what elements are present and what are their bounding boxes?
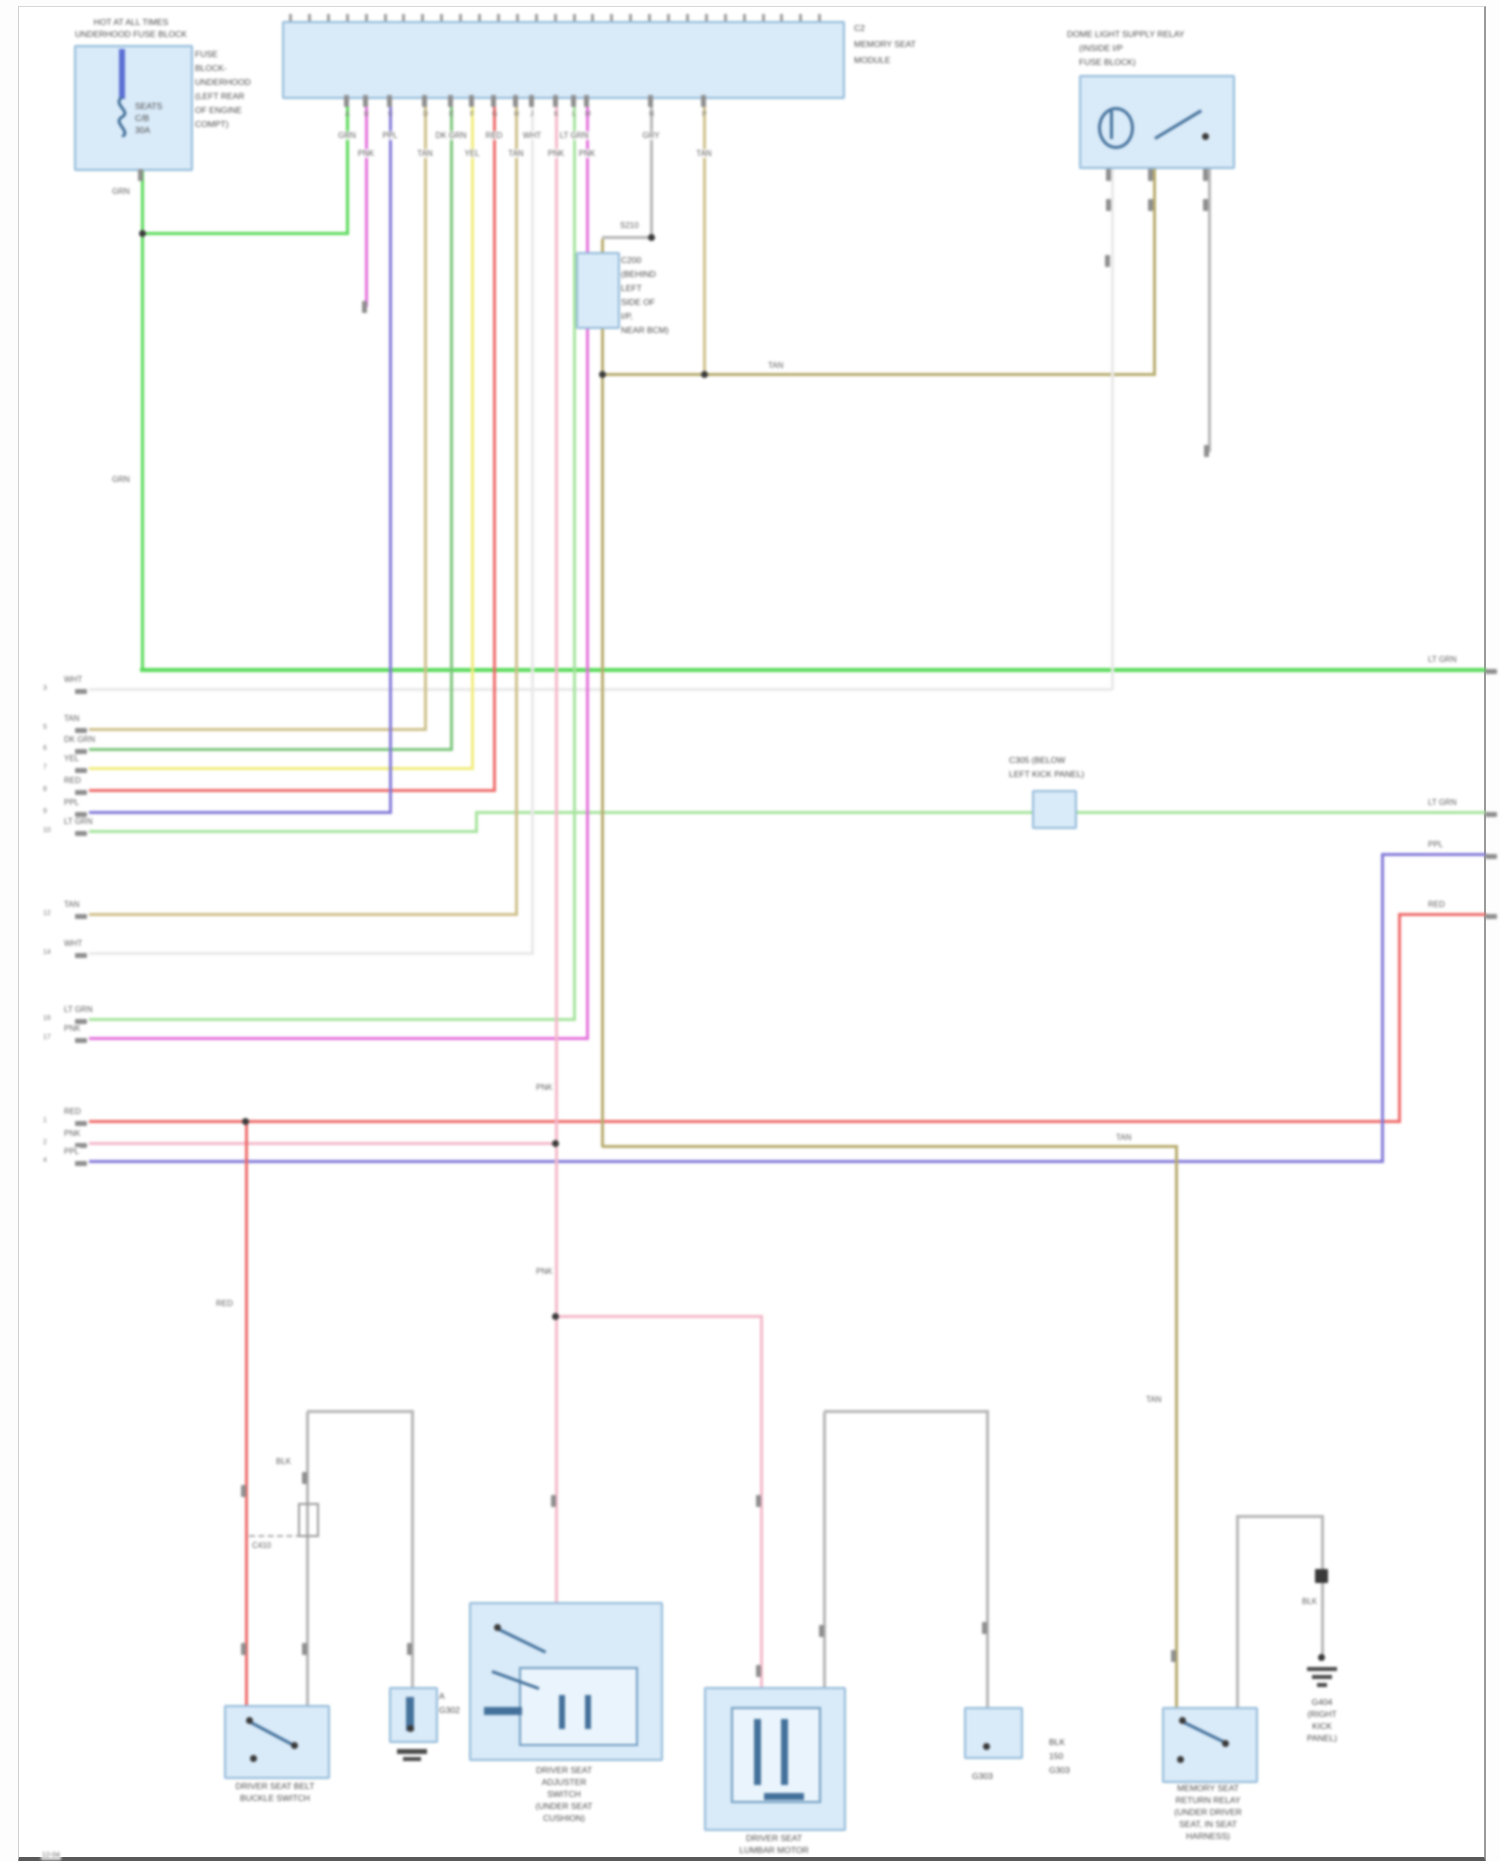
- wire-red-row: [89, 789, 496, 792]
- terminal-number: 3: [43, 685, 47, 692]
- fuse-side-label3: UNDERHOOD: [195, 77, 251, 87]
- wire-color-label: PNK: [357, 149, 375, 158]
- fuse-side-label4: (LEFT REAR: [195, 91, 244, 101]
- module-tick: [762, 14, 765, 21]
- module-tick: [365, 14, 368, 21]
- switch-c-contact1: [559, 1695, 565, 1729]
- wire-color-label: GRN: [337, 131, 357, 140]
- module-pin-stub: [701, 95, 706, 107]
- terminal-number: 4: [43, 1157, 47, 1164]
- terminal-stub: [75, 1161, 87, 1166]
- memory-relay-box: [1162, 1707, 1258, 1783]
- module-pin-letter: C: [388, 111, 393, 118]
- fuse-side-label5: OF ENGINE: [195, 105, 242, 115]
- switch-c-dot1: [494, 1624, 501, 1631]
- wire-green-row-a: [140, 668, 1486, 672]
- wire-color-label: PPL: [381, 131, 398, 140]
- module-pin-letter: E: [449, 111, 454, 118]
- wire-inline-label: PNK: [535, 1083, 553, 1092]
- module-tick: [799, 14, 802, 21]
- ground-g303-dot: [983, 1743, 990, 1750]
- motor-winding2: [781, 1719, 788, 1785]
- terminal-number: 17: [43, 1034, 51, 1041]
- wire-green-battery-drop: [141, 167, 144, 670]
- module-pin-stub: [553, 95, 558, 107]
- wire-purple-right-end: [1382, 853, 1486, 856]
- wire-khaki-into-c200: [601, 239, 604, 252]
- wire-color-label: GRY: [641, 131, 660, 140]
- splice-dot-pink-row: [552, 1140, 559, 1147]
- wire-grey-splice-jog: [602, 236, 653, 239]
- module-tick: [384, 14, 387, 21]
- module-tick: [573, 14, 576, 21]
- comp-f-label1: MEMORY SEAT: [1177, 1783, 1239, 1793]
- module-tick: [629, 14, 632, 21]
- inline-connector-c200-box: [576, 252, 620, 329]
- module-pin-stub: [422, 95, 427, 107]
- terminal-stub: [75, 831, 87, 836]
- terminal-stub: [75, 689, 87, 694]
- module-pin-letter: A: [345, 111, 350, 118]
- module-pin-letter: J: [530, 111, 534, 118]
- wire-inline-label: BLK: [275, 1457, 292, 1466]
- terminal-wire-label: PPL: [63, 1147, 80, 1156]
- module-tick: [780, 14, 783, 21]
- ground-g302-dot: [407, 1725, 414, 1732]
- module-tick: [705, 14, 708, 21]
- relay-coil-icon: [1098, 107, 1134, 149]
- terminal-wire-label: DK GRN: [63, 735, 96, 744]
- wire-ltgreen-module-drop: [573, 95, 576, 1020]
- wire-inline-label: TAN: [1115, 1133, 1132, 1142]
- splice-s210-label: S210: [619, 221, 640, 230]
- wire-purple-module-drop: [389, 95, 392, 813]
- module-pin-stub: [469, 95, 474, 107]
- switch-f-dot1: [1179, 1717, 1186, 1724]
- terminal-number: 10: [43, 827, 51, 834]
- pink-wire-end-stub: [362, 301, 367, 313]
- conn-stub-khaki: [1171, 1650, 1176, 1662]
- conn-stub-red: [241, 1485, 246, 1497]
- module-pin-letter: N: [649, 111, 654, 118]
- comp-c-label3: SWITCH: [547, 1789, 581, 1799]
- comp-c-label5: CUSHION): [543, 1813, 585, 1823]
- module-name-line2: MODULE: [854, 55, 890, 65]
- relay-contact-dot: [1202, 133, 1209, 140]
- wire-tan3-module-drop: [703, 95, 706, 375]
- comp-e-side1: BLK: [1049, 1737, 1065, 1747]
- module-tick: [818, 14, 821, 21]
- comp-c-label2: ADJUSTER: [542, 1777, 587, 1787]
- splice-dot-khaki2: [701, 371, 708, 378]
- module-tick: [440, 14, 443, 21]
- terminal-wire-label: TAN: [63, 900, 80, 909]
- module-tick: [459, 14, 462, 21]
- relay-pin-stub: [1106, 169, 1111, 181]
- ground-wire-terminal: [1315, 1569, 1328, 1583]
- module-tick: [421, 14, 424, 21]
- module-tick: [346, 14, 349, 21]
- wire-color-label: TAN: [416, 149, 433, 158]
- fuse-inside-label3: 30A: [135, 125, 150, 135]
- wire-pink-row: [89, 1037, 589, 1040]
- conn-stub-grey5: [982, 1622, 987, 1634]
- wire-color-label: WHT: [522, 131, 542, 140]
- wire-purple-row: [89, 811, 392, 814]
- switch-f-dot3: [1177, 1756, 1184, 1763]
- terminal-number: 12: [43, 910, 51, 917]
- wire-grey-loop2-top: [824, 1410, 989, 1413]
- diagram-canvas: HOT AT ALL TIMES UNDERHOOD FUSE BLOCK SE…: [19, 7, 1484, 1857]
- wire-white-relay-drop: [1111, 165, 1114, 690]
- wire-white-row-2: [89, 952, 534, 955]
- wire-color-label: PNK: [547, 149, 565, 158]
- ground-g303-box: [964, 1707, 1023, 1759]
- ground-g302-pedestal1: [397, 1749, 427, 1754]
- fuse-inside-label2: C/B: [135, 113, 149, 123]
- wire-color-label: DK GRN: [434, 131, 467, 140]
- relay-pin-stub: [1203, 169, 1208, 181]
- g404-label4: PANEL): [1307, 1733, 1337, 1743]
- wire-grey-loop2-right: [986, 1410, 989, 1707]
- terminal-number: 9: [43, 808, 47, 815]
- module-pin-stub: [571, 95, 576, 107]
- conn-stub-pink3: [756, 1665, 761, 1677]
- wire-dkgreen-module-drop: [450, 95, 453, 750]
- comp-d-label2: LUMBAR MOTOR: [739, 1845, 808, 1855]
- motor-inner-box: [731, 1707, 821, 1803]
- ground-g404-bar3: [1317, 1683, 1327, 1687]
- wire-grey-loop2-left: [823, 1412, 826, 1687]
- terminal-number: 2: [43, 1139, 47, 1146]
- wire-grey-ground-drop: [1321, 1515, 1324, 1659]
- motor-base-bar: [764, 1793, 804, 1800]
- module-pin-stub: [529, 95, 534, 107]
- splice-dot-pink-branch: [552, 1313, 559, 1320]
- wire-tan-row-2: [89, 913, 518, 916]
- wire-khaki-comp-f-drop: [1175, 1145, 1178, 1707]
- module-tick: [478, 14, 481, 21]
- comp-f-label3: (UNDER DRIVER: [1174, 1807, 1242, 1817]
- module-tick: [516, 14, 519, 21]
- terminal-stub: [75, 790, 87, 795]
- module-pin-stub: [344, 95, 349, 107]
- c200-side4: SIDE OF: [621, 297, 655, 307]
- terminal-number: 14: [43, 949, 51, 956]
- switch-a-dot2: [291, 1742, 298, 1749]
- terminal-wire-label: WHT: [63, 939, 83, 948]
- conn-stub-pink1: [551, 1495, 556, 1507]
- terminal-wire-label: TAN: [63, 714, 80, 723]
- ground-g302-pedestal2: [403, 1757, 421, 1761]
- wire-tan-module-drop: [424, 95, 427, 730]
- wire-inline-label: PNK: [535, 1267, 553, 1276]
- terminal-wire-label: PNK: [63, 1129, 81, 1138]
- module-tick: [402, 14, 405, 21]
- terminal-wire-label: YEL: [63, 754, 80, 763]
- g404-label3: KICK: [1312, 1721, 1332, 1731]
- wire-pink-branch: [556, 1315, 763, 1318]
- comp-c-label1: DRIVER SEAT: [536, 1765, 592, 1775]
- wire-white-module-drop: [531, 95, 534, 954]
- terminal-wire-label: RED: [1427, 900, 1446, 909]
- terminal-number: 16: [43, 1015, 51, 1022]
- module-name-line1: MEMORY SEAT: [854, 39, 916, 49]
- wire-color-label: TAN: [695, 149, 712, 158]
- wire-inline-label: TAN: [767, 361, 784, 370]
- module-pin-letter: D: [423, 111, 428, 118]
- relay-coil-core: [1110, 111, 1113, 139]
- splice-dot-red-row: [242, 1118, 249, 1125]
- terminal-number: 7: [43, 764, 47, 771]
- relay-pin-stub: [1148, 169, 1153, 181]
- comp-c-label4: (UNDER SEAT: [536, 1801, 593, 1811]
- switch-c-resistor-bar: [484, 1707, 522, 1715]
- wire-inline-label: RED: [215, 1299, 234, 1308]
- fuse-inside-label1: SEATS: [135, 101, 162, 111]
- wire-purple-long-row: [89, 1160, 1384, 1163]
- wire-pink-module-drop: [365, 95, 368, 307]
- wire-pink-comp-c-drop: [555, 1317, 558, 1602]
- comp-e-below-label: G303: [972, 1771, 993, 1781]
- module-pin-letter: H: [514, 111, 519, 118]
- terminal-stub: [1485, 669, 1497, 674]
- wire-dkgreen-row: [89, 748, 453, 751]
- module-tick: [289, 14, 292, 21]
- switch-c-contact2: [585, 1695, 591, 1729]
- relay-conn-stub: [1148, 199, 1153, 211]
- wire-red-module-drop: [493, 95, 496, 791]
- wire-ltgreen-row-right: [476, 811, 1486, 814]
- comp-a-label2: BUCKLE SWITCH: [240, 1793, 310, 1803]
- wire-red-riser: [1398, 913, 1401, 1122]
- terminal-number: 6: [43, 745, 47, 752]
- wire-inline-label: TAN: [1145, 1395, 1162, 1404]
- wire-grey-loop3-left: [1236, 1515, 1239, 1707]
- conn-stub-red2: [241, 1643, 246, 1655]
- module-tick: [327, 14, 330, 21]
- wire-tan-row: [89, 728, 427, 731]
- fuse-block-title-line2: UNDERHOOD FUSE BLOCK: [75, 29, 187, 39]
- module-tick: [686, 14, 689, 21]
- terminal-wire-label: LT GRN: [1427, 655, 1458, 664]
- wire-red-right-end: [1399, 913, 1486, 916]
- splice-dot-khaki1: [599, 371, 606, 378]
- ground-g404-dot: [1318, 1654, 1325, 1661]
- comp-b-side1: A: [439, 1691, 445, 1701]
- terminal-wire-label: PNK: [63, 1024, 81, 1033]
- conn-stub-grey1: [302, 1472, 307, 1484]
- wire-khaki-bottom-run: [602, 1145, 1178, 1148]
- wire-inline-label: GRN: [111, 187, 131, 196]
- terminal-stub: [75, 768, 87, 773]
- wire-grey-loop1-left: [306, 1412, 309, 1705]
- motor-winding1: [754, 1719, 761, 1785]
- terminal-number: 5: [43, 724, 47, 731]
- module-pin-letter: B: [364, 111, 369, 118]
- comp-e-side3: G303: [1049, 1765, 1070, 1775]
- terminal-stub: [1485, 812, 1497, 817]
- conn-stub-grey2: [302, 1643, 307, 1655]
- wire-pink2-module-drop: [586, 95, 589, 1039]
- fuse-block-out-stub: [138, 169, 143, 181]
- relay-conn-stub2: [1105, 255, 1110, 267]
- c200-side5: I/P,: [621, 311, 633, 321]
- wire-ltgreen-step: [475, 811, 478, 832]
- fuse-block-title-line1: HOT AT ALL TIMES: [94, 17, 169, 27]
- terminal-wire-label: LT GRN: [1427, 798, 1458, 807]
- terminal-wire-label: RED: [63, 1107, 82, 1116]
- comp-f-label4: SEAT, IN SEAT: [1179, 1819, 1237, 1829]
- terminal-stub: [1485, 914, 1497, 919]
- ground-g404-bar1: [1307, 1667, 1337, 1671]
- comp-a-label1: DRIVER SEAT BELT: [236, 1781, 315, 1791]
- wire-khaki-relay-run: [602, 373, 1156, 376]
- terminal-wire-label: PPL: [1427, 840, 1444, 849]
- wire-grey-loop3-top: [1237, 1515, 1324, 1518]
- module-pin-stub: [513, 95, 518, 107]
- circuit-breaker-icon: [109, 97, 135, 137]
- wire-pink-pale-row: [89, 1142, 558, 1145]
- relay-conn-stub: [1203, 199, 1208, 211]
- terminal-number: 1: [43, 1117, 47, 1124]
- splice-dot-battery: [139, 230, 146, 237]
- module-pin-stub: [387, 95, 392, 107]
- conn-stub-grey4: [819, 1625, 824, 1637]
- wire-red-comp-a-drop: [245, 1120, 248, 1705]
- module-tick: [497, 14, 500, 21]
- grey-wire-end-stub: [1204, 445, 1209, 457]
- wire-ltgreen-row-left: [89, 830, 478, 833]
- wire-color-label: RED: [485, 131, 504, 140]
- c200-side6: NEAR BCM): [621, 325, 669, 335]
- switch-a-dot3: [250, 1755, 257, 1762]
- terminal-wire-label: RED: [63, 776, 82, 785]
- terminal-stub: [75, 914, 87, 919]
- comp-f-label2: RETURN RELAY: [1175, 1795, 1240, 1805]
- conn-stub-grey3: [407, 1643, 412, 1655]
- terminal-stub: [75, 1121, 87, 1126]
- wire-color-label: TAN: [507, 149, 524, 158]
- module-tick: [724, 14, 727, 21]
- relay-title-line3: FUSE BLOCK): [1079, 57, 1136, 67]
- g404-label2: (RIGHT: [1307, 1709, 1336, 1719]
- fuse-element-wire: [119, 49, 125, 99]
- module-tick: [667, 14, 670, 21]
- relay-conn-stub: [1106, 199, 1111, 211]
- fuse-side-label1: FUSE: [195, 49, 218, 59]
- wire-purple-riser: [1381, 853, 1384, 1162]
- c305-label-line2: LEFT KICK PANEL): [1009, 769, 1084, 779]
- wire-tan2-module-drop: [515, 95, 518, 915]
- module-conn-label: C2: [854, 23, 865, 33]
- terminal-wire-label: PPL: [63, 798, 80, 807]
- fuse-side-label2: BLOCK-: [195, 63, 227, 73]
- memory-seat-module-box: [282, 21, 845, 99]
- page-footer-code: 12-04: [41, 1851, 61, 1860]
- module-pin-letter: G: [492, 111, 497, 118]
- comp-d-label1: DRIVER SEAT: [746, 1833, 802, 1843]
- wire-yellow-module-drop: [471, 95, 474, 769]
- comp-f-label5: HARNESS): [1186, 1831, 1230, 1841]
- g404-label1: G404: [1312, 1697, 1333, 1707]
- wire-grey-relay-drop: [1208, 165, 1211, 452]
- module-tick: [308, 14, 311, 21]
- wire-pink-long-drop: [555, 95, 558, 1317]
- wire-grey-loop1-top: [307, 1410, 414, 1413]
- inline-connector-symbol: [298, 1503, 319, 1537]
- module-pin-letter: F: [470, 111, 474, 118]
- switch-f-dot2: [1222, 1740, 1229, 1747]
- module-tick: [743, 14, 746, 21]
- switch-a-dot1: [246, 1717, 253, 1724]
- conn-stub-pink2: [756, 1495, 761, 1507]
- wire-inline-label: BLK: [1301, 1597, 1318, 1606]
- wire-color-label: PNK: [578, 149, 596, 158]
- switch-c-inner-panel: [519, 1667, 638, 1746]
- module-pin-stub: [363, 95, 368, 107]
- module-tick: [648, 14, 651, 21]
- splice-dot-s210: [648, 234, 655, 241]
- wire-inline-label: GRN: [111, 475, 131, 484]
- module-tick: [554, 14, 557, 21]
- ground-g404-bar2: [1312, 1675, 1332, 1679]
- module-pin-letter: P: [702, 111, 707, 118]
- c200-side1: C200: [621, 255, 641, 265]
- terminal-wire-label: WHT: [63, 675, 83, 684]
- module-pin-letter: L: [572, 111, 576, 118]
- wire-color-label: LT GRN: [559, 131, 590, 140]
- module-tick: [535, 14, 538, 21]
- wire-yellow-row: [89, 767, 474, 770]
- c305-label-line1: C305 (BELOW: [1009, 755, 1065, 765]
- wire-khaki-relay-drop: [1153, 165, 1156, 375]
- wire-red-long-row: [89, 1120, 1401, 1123]
- terminal-wire-label: LT GRN: [63, 817, 94, 826]
- module-pin-stub: [584, 95, 589, 107]
- seat-belt-switch-box: [224, 1705, 330, 1779]
- inline-connector-c305-box: [1032, 790, 1077, 829]
- comp-b-side2: G302: [439, 1705, 460, 1715]
- wire-color-label: YEL: [463, 149, 480, 158]
- relay-title-line2: (INSIDE I/P: [1079, 43, 1123, 53]
- terminal-wire-label: LT GRN: [63, 1005, 94, 1014]
- terminal-stub: [75, 953, 87, 958]
- terminal-stub: [75, 1038, 87, 1043]
- wiring-diagram-page: HOT AT ALL TIMES UNDERHOOD FUSE BLOCK SE…: [0, 0, 1500, 1861]
- relay-title-line1: DOME LIGHT SUPPLY RELAY: [1067, 29, 1184, 39]
- c200-side2: (BEHIND: [621, 269, 656, 279]
- inline-connector-label: C410: [251, 1541, 272, 1550]
- module-pin-stub: [448, 95, 453, 107]
- module-tick: [610, 14, 613, 21]
- wire-green-battery-branch: [142, 232, 349, 235]
- module-tick: [591, 14, 594, 21]
- module-pin-stub: [491, 95, 496, 107]
- diagram-border-frame: HOT AT ALL TIMES UNDERHOOD FUSE BLOCK SE…: [18, 6, 1486, 1861]
- comp-e-side2: 150: [1049, 1751, 1063, 1761]
- fuse-side-label6: COMPT): [195, 119, 229, 129]
- module-pin-letter: M: [585, 111, 591, 118]
- wire-khaki-long-drop: [601, 325, 604, 1147]
- terminal-stub: [75, 728, 87, 733]
- module-pin-stub: [648, 95, 653, 107]
- c200-side3: LEFT: [621, 283, 642, 293]
- module-pin-letter: K: [554, 111, 559, 118]
- terminal-stub: [1485, 854, 1497, 859]
- terminal-number: 8: [43, 786, 47, 793]
- wire-ltgreen-row-2: [89, 1018, 576, 1021]
